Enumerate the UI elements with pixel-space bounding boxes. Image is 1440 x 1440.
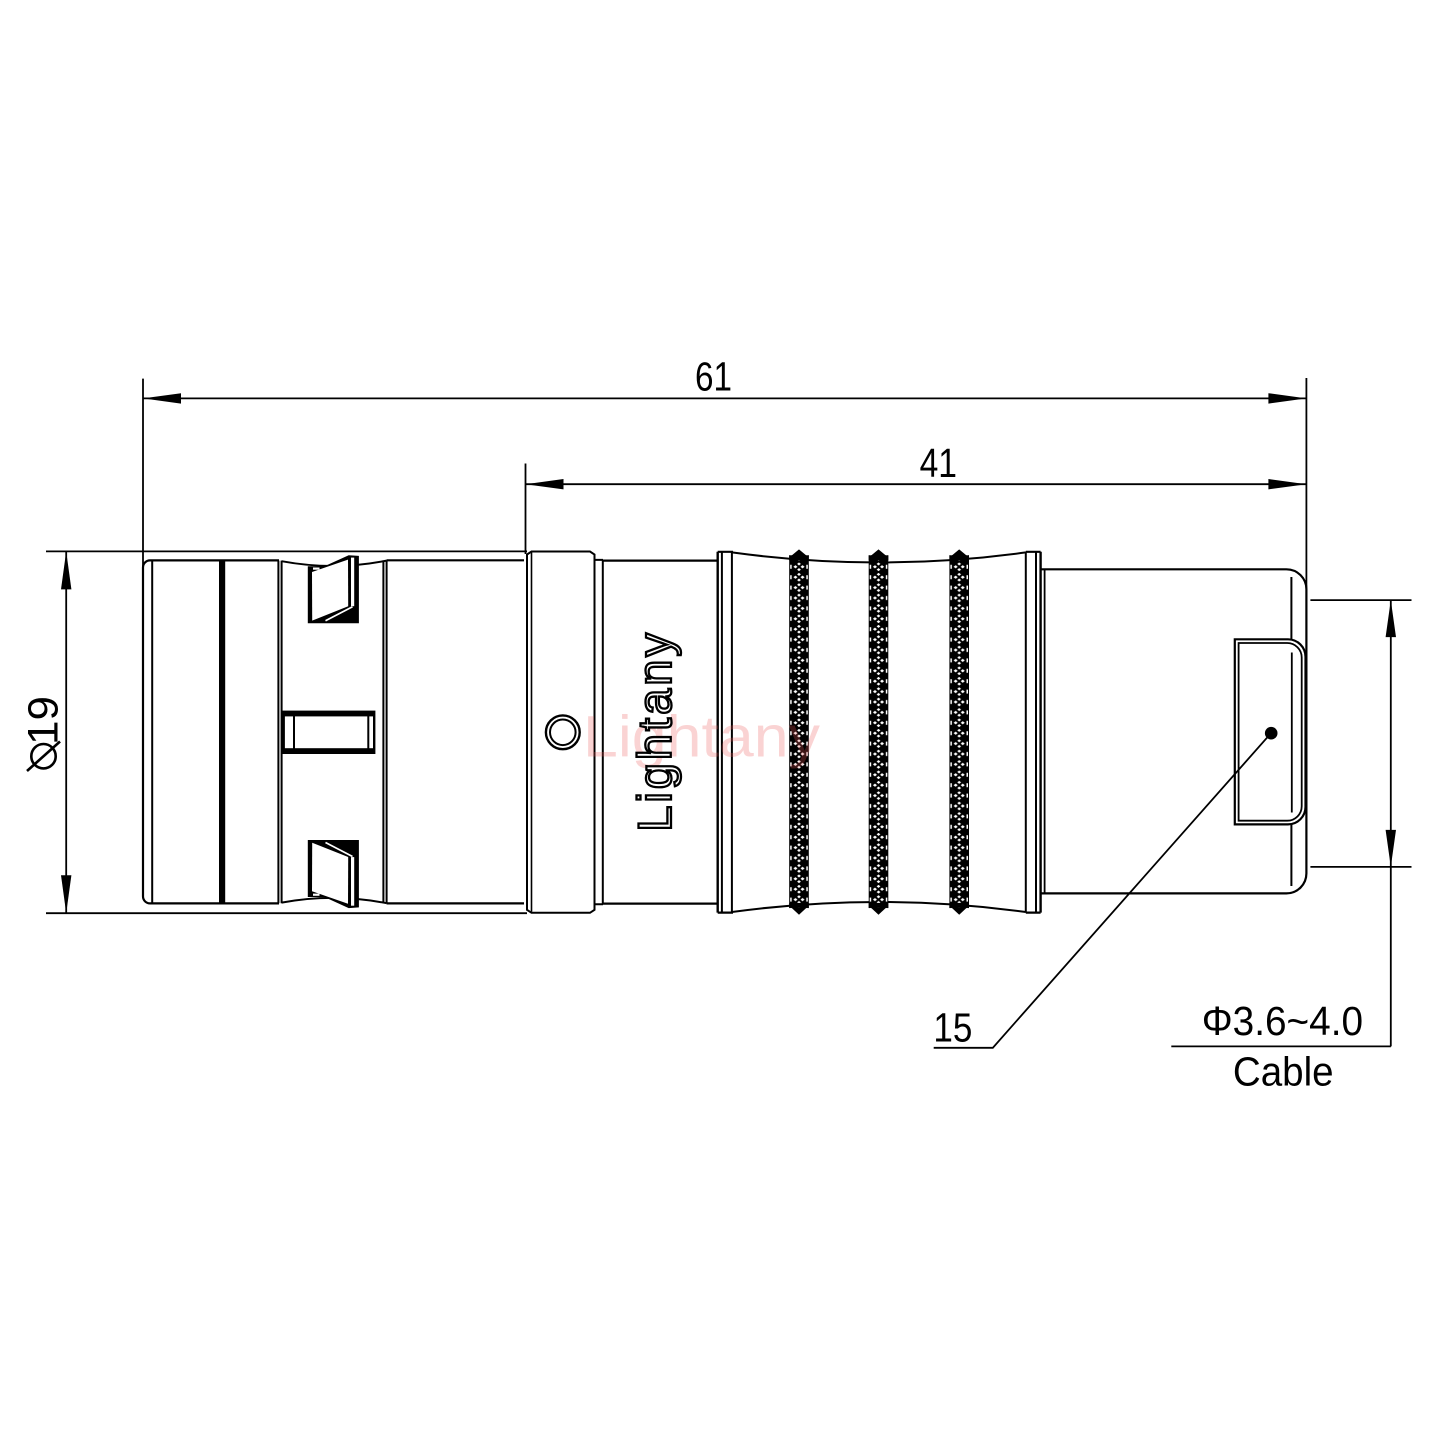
svg-text:Φ3.6~4.0: Φ3.6~4.0: [1202, 998, 1363, 1044]
svg-text:61: 61: [695, 354, 732, 400]
svg-text:Lightany: Lightany: [583, 705, 820, 770]
svg-text:Cable: Cable: [1233, 1049, 1334, 1095]
svg-text:41: 41: [920, 440, 957, 486]
svg-text:15: 15: [933, 1004, 972, 1050]
svg-text:19: 19: [20, 696, 68, 745]
svg-text:Lightany: Lightany: [628, 630, 681, 832]
